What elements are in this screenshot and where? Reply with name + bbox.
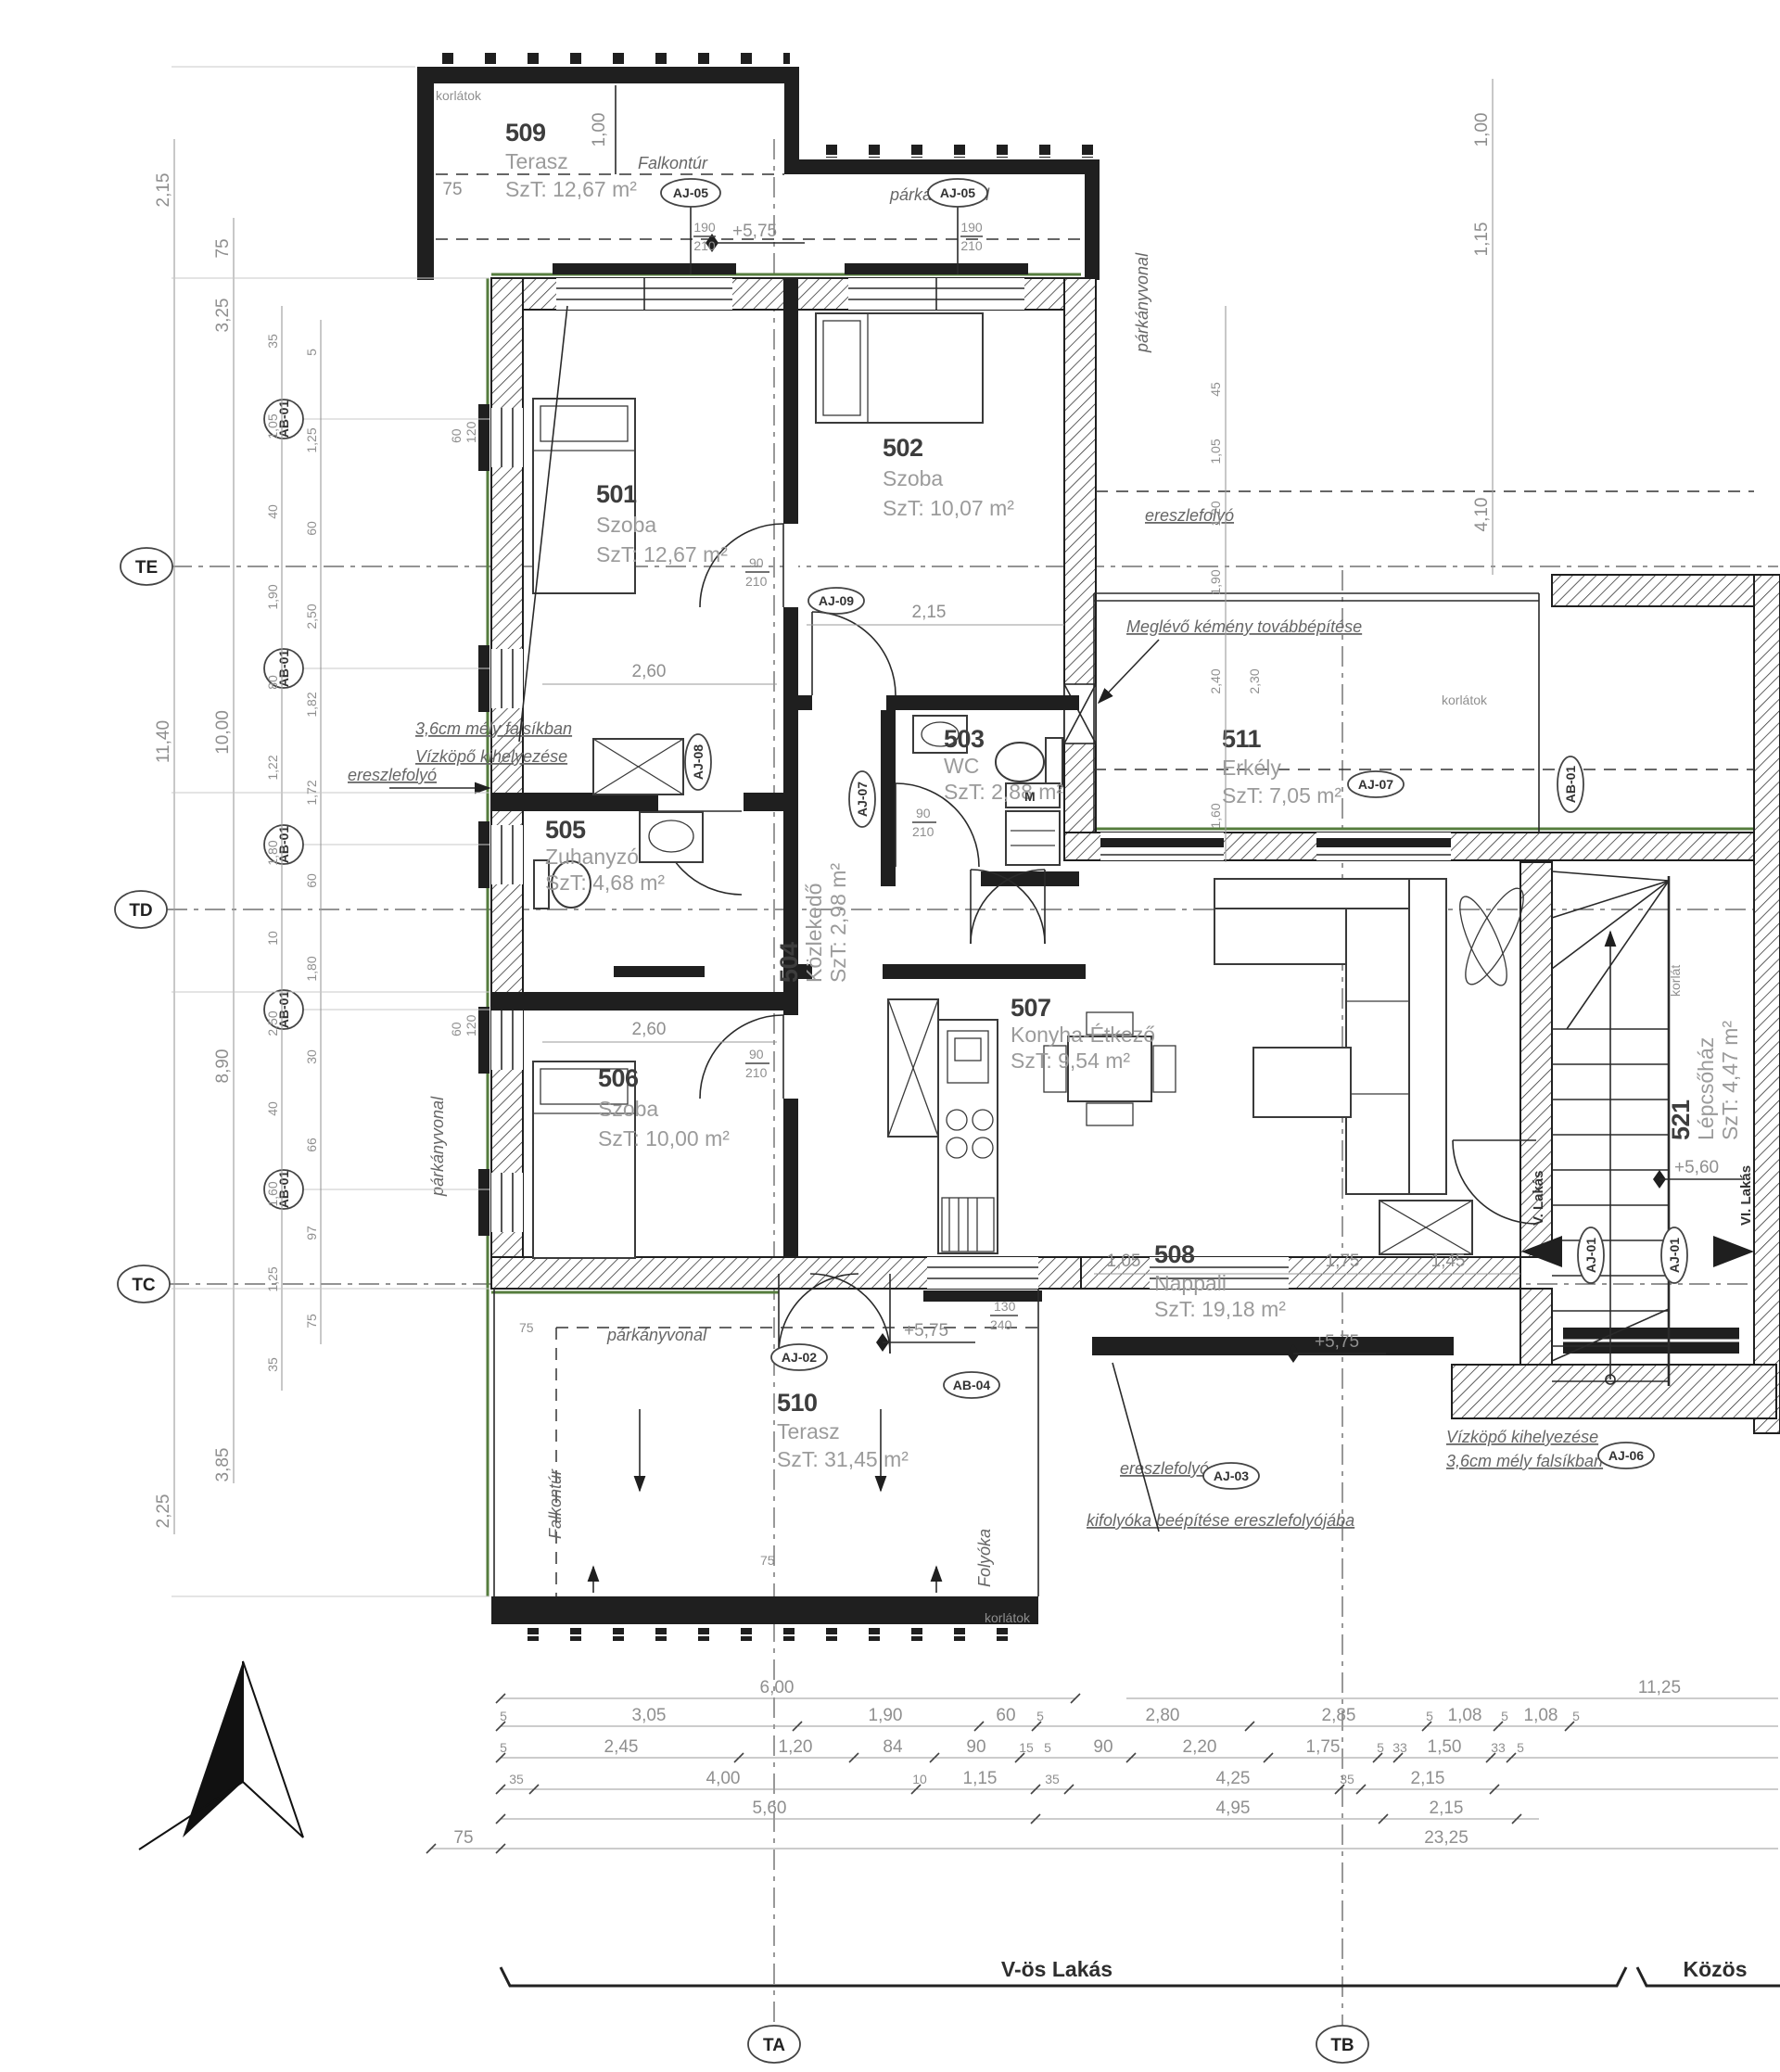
svg-text:33: 33 — [1392, 1740, 1407, 1755]
svg-text:11,40: 11,40 — [154, 720, 173, 763]
tag-aj08: AJ-08 — [685, 734, 711, 790]
korlatok-balcony: korlátok — [1442, 693, 1488, 707]
svg-text:5: 5 — [1501, 1709, 1508, 1723]
svg-text:5: 5 — [304, 349, 319, 356]
svg-text:5: 5 — [1044, 1740, 1051, 1755]
svg-text:ereszlefolyó: ereszlefolyó — [348, 766, 437, 784]
parkanyvonal-bottom: párkányvonal — [606, 1326, 707, 1344]
floorplan-sheet: 501 Szoba SzT: 12,67 m² 502 Szoba SzT: 1… — [0, 0, 1780, 2072]
svg-text:90: 90 — [749, 555, 764, 570]
svg-text:TA: TA — [763, 2036, 785, 2055]
svg-text:1,60: 1,60 — [1208, 803, 1223, 828]
svg-text:3,6cm mély falsíkban: 3,6cm mély falsíkban — [1446, 1452, 1603, 1470]
floorplan-drawing: 501 Szoba SzT: 12,67 m² 502 Szoba SzT: 1… — [0, 0, 1780, 2072]
svg-text:1,90: 1,90 — [265, 584, 280, 609]
svg-text:190: 190 — [693, 220, 716, 235]
elevation-560-1: +5,60 — [1653, 1158, 1745, 1189]
svg-text:502: 502 — [883, 434, 923, 462]
tag-aj07-2: AJ-07 — [1348, 771, 1404, 797]
svg-text:SzT: 10,00 m²: SzT: 10,00 m² — [598, 1126, 730, 1150]
svg-text:190: 190 — [960, 220, 983, 235]
svg-text:507: 507 — [1011, 994, 1051, 1022]
svg-text:60: 60 — [449, 1022, 464, 1036]
door-506 — [700, 1015, 783, 1099]
svg-text:Terasz: Terasz — [505, 149, 568, 173]
svg-text:511: 511 — [1222, 725, 1262, 753]
svg-text:Szoba: Szoba — [598, 1097, 658, 1121]
svg-text:1,20: 1,20 — [779, 1737, 813, 1757]
room-label-509: 509 Terasz SzT: 12,67 m² — [505, 119, 637, 201]
grid-bubble-te: TE — [121, 548, 172, 585]
svg-text:30: 30 — [304, 1049, 319, 1064]
svg-text:AJ-06: AJ-06 — [1608, 1448, 1644, 1463]
svg-text:35: 35 — [1045, 1772, 1060, 1786]
svg-text:+5,60: +5,60 — [1674, 1158, 1719, 1177]
svg-text:TE: TE — [135, 558, 158, 578]
svg-text:5: 5 — [500, 1740, 507, 1755]
cabinet-508 — [1379, 1201, 1472, 1254]
tag-aj03: AJ-03 — [1203, 1463, 1259, 1489]
svg-text:60: 60 — [304, 521, 319, 536]
tag-aj02: AJ-02 — [771, 1344, 827, 1370]
winsize-left-2: 60120 — [449, 1014, 478, 1036]
svg-text:10: 10 — [912, 1772, 927, 1786]
svg-text:1,90: 1,90 — [869, 1706, 903, 1725]
svg-text:15: 15 — [1019, 1740, 1034, 1755]
room-label-502: 502 Szoba SzT: 10,07 m² — [883, 434, 1014, 520]
tag-ab01-l2: AB-01 — [264, 649, 489, 688]
svg-text:3,05: 3,05 — [632, 1706, 667, 1725]
balcony-511 — [1094, 491, 1754, 833]
svg-text:23,25: 23,25 — [1424, 1828, 1468, 1848]
zone-label-v: V-ös Lakás — [1001, 1957, 1112, 1981]
svg-text:97: 97 — [304, 1226, 319, 1240]
svg-text:90: 90 — [966, 1737, 985, 1757]
svg-text:1,80: 1,80 — [265, 840, 280, 865]
svg-text:90: 90 — [1093, 1737, 1112, 1757]
svg-text:AJ-01: AJ-01 — [1667, 1238, 1682, 1273]
svg-text:SzT: 19,18 m²: SzT: 19,18 m² — [1154, 1297, 1286, 1321]
svg-text:SzT: 12,67 m²: SzT: 12,67 m² — [505, 177, 637, 201]
svg-text:2,15: 2,15 — [912, 603, 947, 622]
svg-text:Konyha-Étkező: Konyha-Étkező — [1011, 1023, 1155, 1047]
window-left-2 — [478, 645, 523, 712]
svg-text:Szoba: Szoba — [883, 466, 943, 490]
svg-text:TD: TD — [129, 901, 152, 921]
korlatok-terrace: korlátok — [985, 1610, 1031, 1625]
svg-text:35: 35 — [1340, 1772, 1354, 1786]
lakas-vi-label: VI. Lakás — [1738, 1165, 1754, 1226]
svg-text:210: 210 — [960, 238, 983, 253]
svg-text:SzT: 4,68 m²: SzT: 4,68 m² — [545, 871, 665, 895]
svg-text:Meglévő kémény továbbépítése: Meglévő kémény továbbépítése — [1126, 617, 1362, 636]
tag-aj01-1: AJ-01 — [1578, 1227, 1604, 1283]
svg-text:1,60: 1,60 — [265, 1181, 280, 1206]
ereszlefolyo-bottom: ereszlefolyó — [1120, 1459, 1209, 1478]
svg-text:75: 75 — [442, 180, 462, 199]
svg-text:521: 521 — [1667, 1100, 1695, 1140]
svg-text:SzT: 2,98 m²: SzT: 2,98 m² — [826, 863, 850, 983]
svg-text:505: 505 — [545, 816, 586, 844]
svg-text:SzT: 9,54 m²: SzT: 9,54 m² — [1011, 1049, 1130, 1073]
svg-text:35: 35 — [509, 1772, 524, 1786]
svg-text:Nappali: Nappali — [1154, 1271, 1227, 1295]
svg-text:+5,75: +5,75 — [1315, 1332, 1359, 1352]
svg-text:AJ-08: AJ-08 — [691, 744, 706, 780]
svg-text:AJ-02: AJ-02 — [782, 1350, 817, 1365]
doorsize-501: 90210 — [745, 555, 769, 589]
svg-text:40: 40 — [265, 504, 280, 519]
svg-text:AJ-09: AJ-09 — [819, 593, 854, 608]
svg-text:AJ-03: AJ-03 — [1214, 1468, 1249, 1483]
svg-text:1,75: 1,75 — [1306, 1737, 1341, 1757]
svg-text:2,15: 2,15 — [154, 173, 173, 208]
window-left-4 — [478, 1007, 523, 1074]
tag-aj05-1: AJ-05 190 210 — [661, 179, 720, 274]
kemeny-note: Meglévő kémény továbbépítése — [1099, 617, 1362, 703]
svg-text:5: 5 — [1572, 1709, 1580, 1723]
svg-text:2,45: 2,45 — [604, 1737, 639, 1757]
parkanyvonal-right: párkányvonal — [1133, 252, 1151, 353]
window-aj05-2 — [845, 263, 1028, 310]
tag-aj06: AJ-06 — [1598, 1443, 1654, 1468]
svg-text:508: 508 — [1154, 1240, 1195, 1268]
kitchen-counter — [938, 1020, 998, 1253]
svg-text:210: 210 — [745, 1065, 768, 1080]
svg-text:240: 240 — [990, 1317, 1012, 1332]
svg-text:2,40: 2,40 — [1208, 668, 1223, 693]
svg-text:2,85: 2,85 — [1322, 1706, 1356, 1725]
svg-text:1,08: 1,08 — [1448, 1706, 1482, 1725]
window-balcony-2 — [1316, 833, 1451, 860]
tag-aj07-1: AJ-07 — [849, 771, 875, 827]
svg-text:35: 35 — [265, 1357, 280, 1372]
svg-text:1,82: 1,82 — [304, 692, 319, 717]
grid-bubble-tc: TC — [118, 1265, 170, 1303]
svg-text:75: 75 — [304, 1314, 319, 1328]
svg-text:120: 120 — [464, 421, 478, 443]
korlat-stair: korlát — [1668, 965, 1683, 997]
svg-text:60: 60 — [996, 1706, 1015, 1725]
svg-text:3,6cm mély falsíkban: 3,6cm mély falsíkban — [415, 719, 572, 738]
svg-text:90: 90 — [749, 1047, 764, 1061]
wardrobe-501 — [593, 739, 683, 794]
svg-text:75: 75 — [453, 1828, 473, 1848]
parkanyvonal-left: párkányvonal — [428, 1096, 447, 1197]
svg-text:4,25: 4,25 — [1216, 1769, 1251, 1788]
svg-text:501: 501 — [596, 480, 637, 508]
svg-text:1,25: 1,25 — [304, 427, 319, 452]
svg-text:1,22: 1,22 — [265, 755, 280, 780]
room-label-506: 506 Szoba SzT: 10,00 m² — [598, 1064, 730, 1150]
svg-text:2,50: 2,50 — [265, 1011, 280, 1036]
svg-text:503: 503 — [944, 725, 985, 753]
svg-text:2,60: 2,60 — [632, 1020, 667, 1039]
dimension-chains-left: 2,15 11,40 2,25 75 3,25 10,00 8,90 3,85 … — [154, 67, 489, 1596]
svg-text:210: 210 — [745, 574, 768, 589]
winsize-left-1: 60120 — [449, 421, 478, 443]
svg-text:1,05: 1,05 — [1208, 439, 1223, 464]
tag-ab01-l5: AB-01 — [264, 1170, 489, 1209]
svg-text:3,85: 3,85 — [213, 1448, 233, 1482]
svg-text:SzT: 31,45 m²: SzT: 31,45 m² — [777, 1447, 909, 1471]
elevation-575-1: +5,75 — [706, 222, 805, 252]
svg-text:2,20: 2,20 — [1183, 1737, 1217, 1757]
svg-text:2,30: 2,30 — [1247, 668, 1262, 693]
svg-text:506: 506 — [598, 1064, 639, 1092]
svg-text:5,60: 5,60 — [753, 1799, 787, 1818]
apartment-vi-arrow — [1713, 1236, 1754, 1267]
svg-text:Erkély: Erkély — [1222, 756, 1281, 780]
tag-aj01-2: AJ-01 — [1661, 1227, 1687, 1283]
svg-text:11,25: 11,25 — [1638, 1678, 1681, 1697]
staircase — [1552, 871, 1669, 1386]
svg-text:33: 33 — [1491, 1740, 1506, 1755]
svg-text:kifolyóka beépítése ereszlefol: kifolyóka beépítése ereszlefolyójába — [1087, 1511, 1354, 1530]
svg-text:2,15: 2,15 — [1411, 1769, 1445, 1788]
svg-text:2,25: 2,25 — [154, 1494, 173, 1529]
svg-text:5: 5 — [1517, 1740, 1524, 1755]
tag-ab04: AB-04 — [944, 1372, 999, 1398]
room-label-510: 510 Terasz SzT: 31,45 m² — [777, 1389, 909, 1471]
svg-text:510: 510 — [777, 1389, 818, 1417]
window-left-5 — [478, 1169, 523, 1236]
svg-text:66: 66 — [304, 1138, 319, 1152]
svg-text:1,75: 1,75 — [1326, 1252, 1360, 1271]
svg-text:SzT: 10,07 m²: SzT: 10,07 m² — [883, 496, 1014, 520]
window-bottom-1 — [923, 1257, 1042, 1302]
svg-text:1,25: 1,25 — [265, 1266, 280, 1291]
svg-text:AJ-05: AJ-05 — [673, 185, 708, 200]
falkontur-terrace: Falkontúr — [546, 1468, 565, 1539]
svg-text:45: 45 — [1208, 382, 1223, 397]
svg-text:5: 5 — [1377, 1740, 1384, 1755]
svg-text:8,90: 8,90 — [213, 1049, 233, 1084]
svg-text:210: 210 — [912, 824, 934, 839]
svg-text:AJ-07: AJ-07 — [855, 782, 870, 817]
svg-text:2,60: 2,60 — [632, 662, 667, 681]
svg-text:1,90: 1,90 — [1208, 569, 1223, 594]
grid-bubble-ta: TA — [748, 2026, 800, 2063]
svg-text:SzT: 12,67 m²: SzT: 12,67 m² — [596, 542, 728, 566]
sofa-508 — [1214, 879, 1446, 1194]
svg-text:75: 75 — [519, 1320, 534, 1335]
washbasin-505 — [640, 812, 703, 862]
doorsize-506: 90210 — [745, 1047, 769, 1080]
window-stairhall — [1563, 1328, 1739, 1354]
korlatok-top: korlátok — [436, 88, 482, 103]
svg-text:10,00: 10,00 — [213, 710, 233, 755]
svg-text:84: 84 — [883, 1737, 903, 1757]
tag-aj09: AJ-09 — [808, 588, 864, 614]
svg-text:AB-01: AB-01 — [1563, 766, 1578, 804]
svg-text:75: 75 — [760, 1553, 775, 1568]
svg-text:Vízköpő kihelyezése: Vízköpő kihelyezése — [1446, 1428, 1598, 1446]
svg-text:5: 5 — [1426, 1709, 1433, 1723]
svg-text:Lépcsőház: Lépcsőház — [1694, 1037, 1718, 1140]
svg-text:210: 210 — [693, 238, 716, 253]
svg-text:TB: TB — [1330, 2036, 1354, 2055]
window-aj05-1 — [553, 263, 736, 310]
ereszlefolyo-left: ereszlefolyó — [348, 766, 489, 788]
svg-text:1,72: 1,72 — [304, 780, 319, 805]
grid-bubble-tb: TB — [1316, 2026, 1368, 2063]
zone-brackets: V-ös Lakás Közös — [501, 1957, 1780, 1986]
svg-text:Vízköpő kihelyezése: Vízköpő kihelyezése — [415, 747, 567, 766]
room-label-521: 521 Lépcsőház SzT: 4,47 m² — [1667, 1021, 1742, 1140]
shower-drain-505 — [614, 966, 705, 977]
north-arrow-icon — [139, 1661, 303, 1850]
svg-text:1,05: 1,05 — [265, 413, 280, 439]
svg-text:WC: WC — [944, 754, 979, 778]
svg-text:2,15: 2,15 — [1430, 1799, 1464, 1818]
svg-text:Szoba: Szoba — [596, 513, 656, 537]
svg-text:6,00: 6,00 — [760, 1678, 795, 1697]
vizkopo-note-right: Vízköpő kihelyezése 3,6cm mély falsíkban — [1446, 1428, 1603, 1470]
svg-text:Közlekedő: Közlekedő — [802, 883, 826, 983]
svg-text:TC: TC — [132, 1276, 156, 1295]
svg-text:SzT: 7,05 m²: SzT: 7,05 m² — [1222, 783, 1341, 807]
tag-ab01-right: AB-01 — [1557, 756, 1583, 812]
zone-label-kozos: Közös — [1684, 1957, 1748, 1981]
tag-ab01-l3: AB-01 — [264, 825, 489, 864]
svg-text:90: 90 — [916, 806, 931, 820]
svg-text:4,00: 4,00 — [706, 1769, 741, 1788]
svg-text:75: 75 — [213, 238, 233, 258]
room-label-511: 511 Erkély SzT: 7,05 m² — [1222, 725, 1341, 807]
svg-text:1,00: 1,00 — [1472, 113, 1492, 147]
washer-m-label: M — [1024, 789, 1036, 804]
svg-text:1,08: 1,08 — [1524, 1706, 1558, 1725]
window-left-1 — [478, 404, 523, 471]
svg-text:2,80: 2,80 — [1146, 1706, 1180, 1725]
svg-text:SzT: 2,88 m²: SzT: 2,88 m² — [944, 780, 1063, 804]
pantry-cabinet — [888, 999, 938, 1137]
tag-aj05-2: AJ-05 190 210 — [928, 179, 987, 274]
dimension-chains-bottom: 6,00 11,25 5 3,05 1,90 60 5 2,80 2,85 5 … — [426, 1678, 1778, 1853]
svg-text:AJ-05: AJ-05 — [940, 185, 975, 200]
svg-text:4,95: 4,95 — [1216, 1799, 1251, 1818]
svg-text:509: 509 — [505, 119, 546, 146]
svg-text:60: 60 — [304, 873, 319, 888]
svg-text:1,05: 1,05 — [1107, 1252, 1141, 1271]
svg-text:1,15: 1,15 — [963, 1769, 998, 1788]
svg-text:1,00: 1,00 — [590, 113, 609, 147]
lakas-v-label: V. Lakás — [1531, 1171, 1546, 1227]
svg-text:SzT: 4,47 m²: SzT: 4,47 m² — [1718, 1021, 1742, 1140]
svg-text:1,45: 1,45 — [1431, 1252, 1466, 1271]
svg-text:AJ-01: AJ-01 — [1583, 1238, 1598, 1273]
svg-text:5: 5 — [500, 1709, 507, 1723]
kifolyoka-note: kifolyóka beépítése ereszlefolyójába — [1087, 1363, 1354, 1532]
falkontur-top: Falkontúr — [638, 154, 708, 172]
svg-text:80: 80 — [265, 675, 280, 690]
doorsize-503: 90210 — [912, 806, 936, 839]
svg-text:10: 10 — [265, 931, 280, 946]
svg-text:35: 35 — [265, 334, 280, 349]
svg-text:1,50: 1,50 — [1428, 1737, 1462, 1757]
window-left-3 — [478, 821, 523, 888]
chimney — [1064, 684, 1096, 744]
svg-text:+5,75: +5,75 — [732, 222, 777, 241]
svg-text:1,80: 1,80 — [304, 956, 319, 981]
svg-text:2,50: 2,50 — [304, 604, 319, 629]
svg-text:130: 130 — [994, 1299, 1016, 1314]
bed-502 — [816, 313, 983, 423]
svg-text:120: 120 — [464, 1014, 478, 1036]
svg-text:+5,75: +5,75 — [904, 1321, 948, 1341]
elevation-575-2: +5,75 — [876, 1321, 975, 1352]
folyoka-label: Folyóka — [975, 1529, 994, 1587]
svg-text:1,15: 1,15 — [1472, 222, 1492, 257]
svg-text:4,10: 4,10 — [1472, 498, 1492, 532]
svg-text:40: 40 — [265, 1101, 280, 1116]
svg-text:60: 60 — [449, 428, 464, 443]
window-balcony-1 — [1100, 833, 1224, 860]
svg-text:AB-04: AB-04 — [953, 1378, 991, 1392]
svg-text:AJ-07: AJ-07 — [1358, 777, 1393, 792]
svg-text:1,20: 1,20 — [1208, 501, 1223, 526]
svg-text:504: 504 — [775, 942, 803, 983]
room-label-501: 501 Szoba SzT: 12,67 m² — [596, 480, 728, 566]
grid-bubble-td: TD — [115, 891, 167, 928]
svg-text:5: 5 — [1036, 1709, 1044, 1723]
svg-text:3,25: 3,25 — [213, 299, 233, 333]
svg-text:Zuhanyzó: Zuhanyzó — [545, 845, 639, 869]
svg-text:Terasz: Terasz — [777, 1419, 840, 1443]
coffee-table — [1253, 1048, 1351, 1117]
